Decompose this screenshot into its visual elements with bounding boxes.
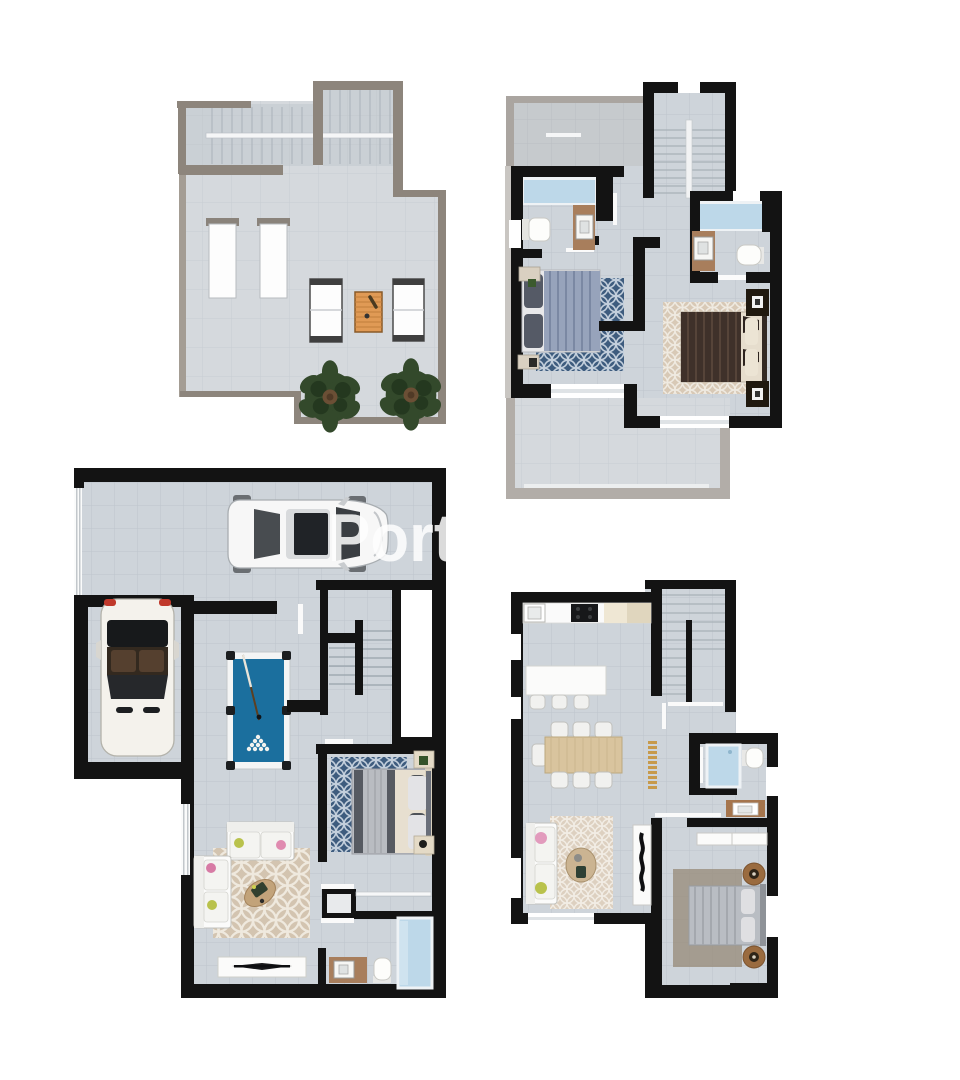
svg-text:Port: Port (328, 500, 455, 576)
